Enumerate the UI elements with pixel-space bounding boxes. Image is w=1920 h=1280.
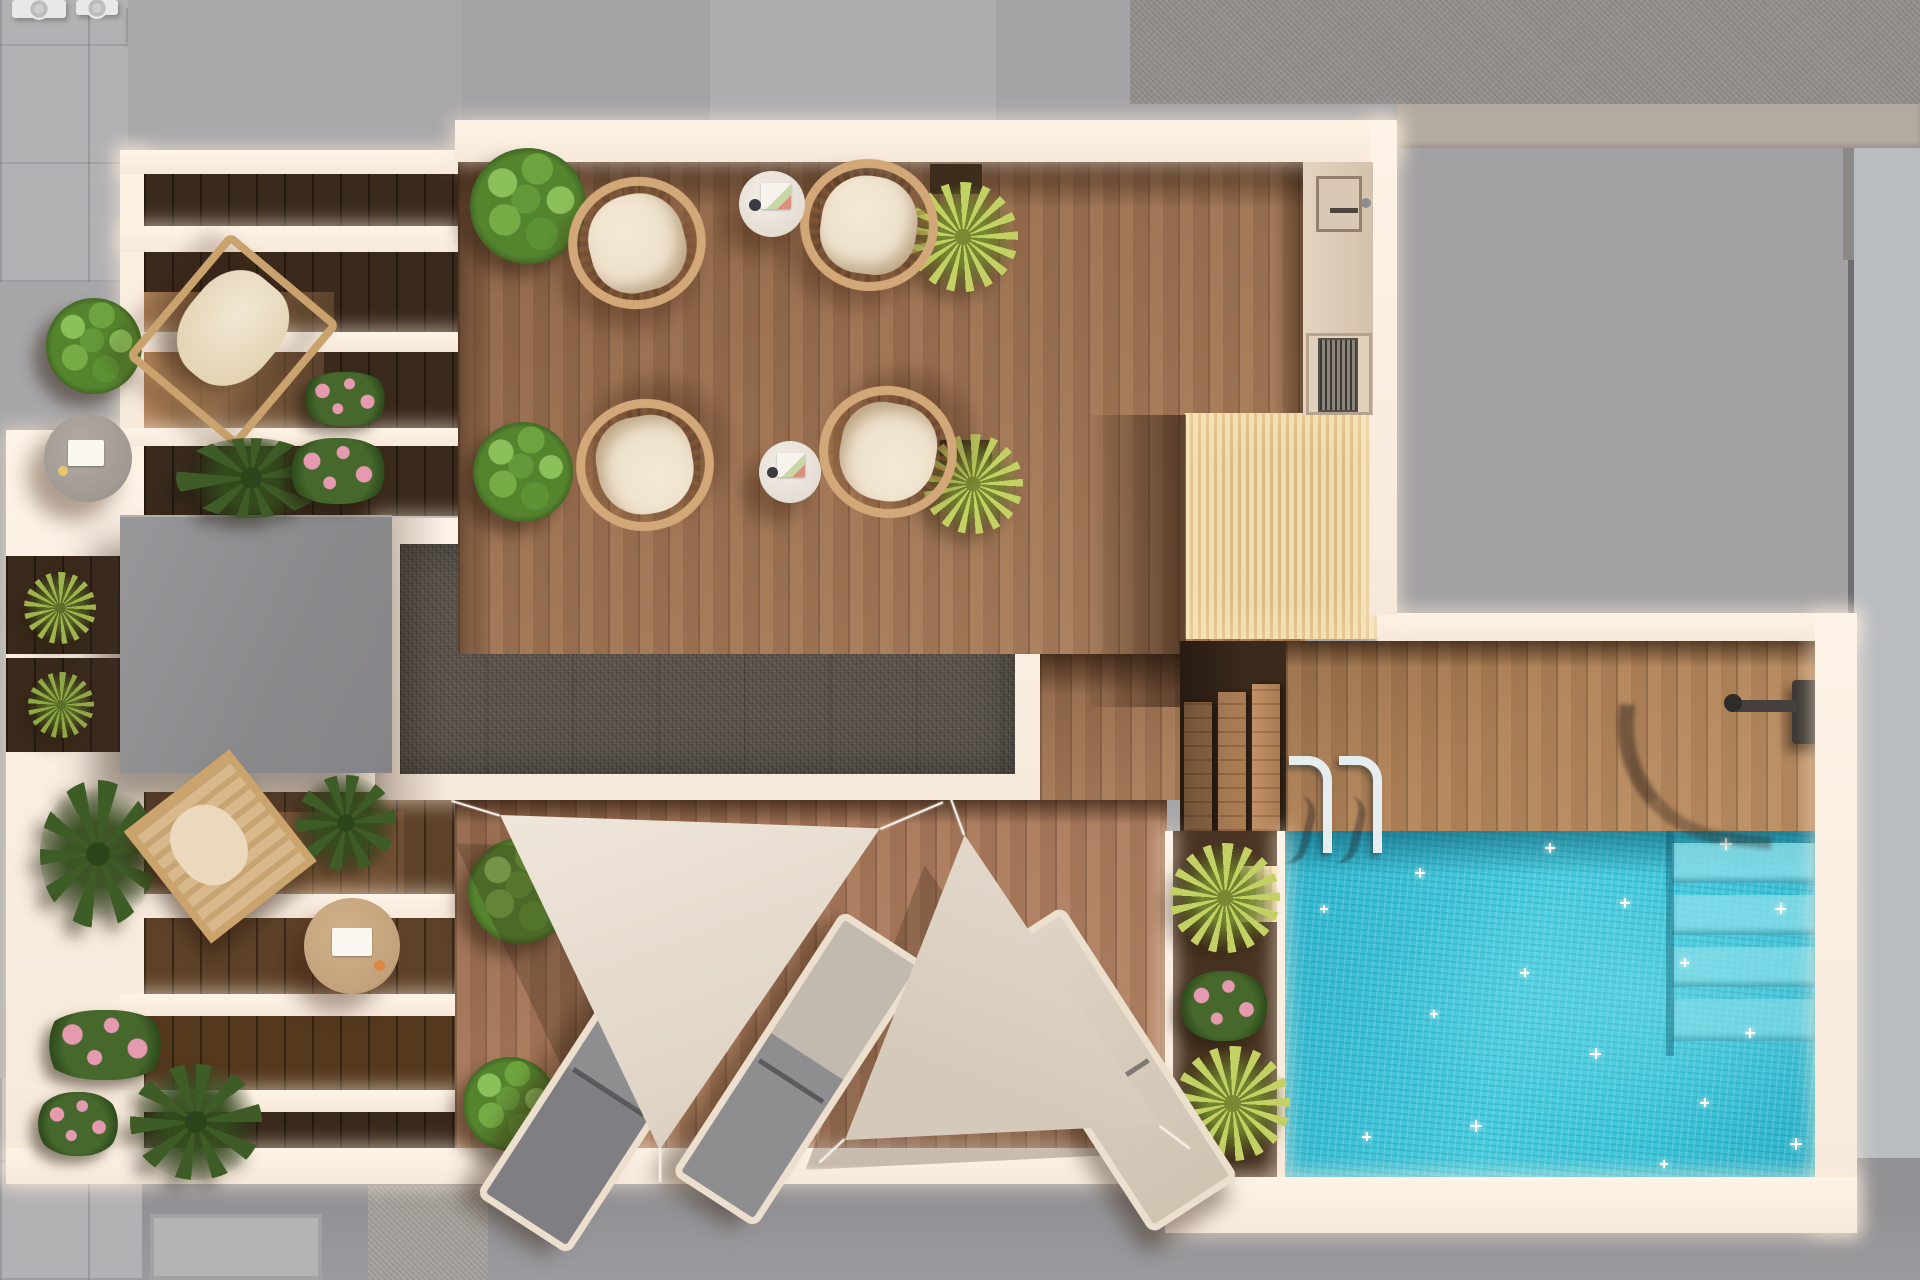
sun-sparkle-icon (1430, 1010, 1438, 1018)
kitchen-sink (1316, 176, 1362, 232)
table-tray (777, 453, 805, 477)
sun-sparkle-icon (1545, 843, 1555, 853)
table-tray (68, 440, 104, 466)
leafy-plant (130, 1064, 262, 1180)
pergola-beam (120, 994, 460, 1016)
pool-ladder-handle (1289, 756, 1332, 853)
pergola-beam (120, 894, 460, 918)
cup-icon (749, 199, 761, 211)
pool-step (1672, 895, 1815, 935)
leafy-plant (40, 780, 156, 928)
grill-unit (1306, 333, 1372, 415)
right-wall-top (1370, 120, 1397, 615)
wicker-chair (791, 150, 946, 300)
pavement-texture-patch (368, 1186, 488, 1280)
sun-sparkle-icon (1470, 1120, 1482, 1132)
pool-ladder-handle (1339, 756, 1382, 853)
wicker-chair (566, 388, 725, 542)
planter-gap (144, 174, 458, 226)
sun-sparkle-icon (1790, 1138, 1802, 1150)
pool-step (1672, 947, 1815, 987)
yucca-plant (1170, 843, 1280, 953)
wicker-chair (809, 375, 968, 529)
flower-planter (286, 438, 390, 504)
sun-sparkle-icon (1320, 905, 1328, 913)
textured-roof-top-right (1130, 0, 1920, 104)
shower-head-icon (1724, 694, 1742, 712)
lemon-icon (58, 466, 68, 476)
sun-sparkle-icon (1660, 1160, 1668, 1168)
agave-plant (28, 672, 94, 738)
bush (473, 422, 573, 522)
service-block (120, 515, 392, 773)
sun-sparkle-icon (1775, 903, 1786, 914)
sun-sparkle-icon (1745, 1028, 1755, 1038)
faucet-knob-icon (1361, 198, 1371, 208)
gray-side-table (44, 414, 132, 502)
pool-step-edge-shadow (1666, 831, 1674, 1056)
white-side-table (739, 171, 805, 237)
slat-deck-shadow (1090, 415, 1186, 707)
rooftop-terrace-render (0, 0, 1920, 1280)
steps-shadow (1180, 641, 1244, 831)
sun-sparkle-icon (1415, 868, 1425, 878)
pool-right-wall (1815, 613, 1857, 1233)
flower-planter (1179, 971, 1269, 1041)
pool-step (1672, 843, 1815, 883)
sun-sparkle-icon (1520, 968, 1529, 977)
bush (46, 298, 142, 394)
swimming-pool (1285, 831, 1815, 1177)
shower-arm (1736, 700, 1796, 712)
cup-icon (767, 467, 778, 478)
planter-gap (144, 918, 458, 994)
kitchen-edge-shadow (1272, 160, 1305, 415)
flower-planter (300, 372, 390, 426)
slat-deck (1185, 413, 1379, 639)
wing-top-wall (120, 150, 460, 174)
sail-cord (659, 1148, 661, 1182)
white-side-table (759, 441, 821, 503)
parapet-band (1395, 104, 1920, 148)
wall-shadow (1286, 641, 1817, 667)
orange-icon (374, 960, 385, 971)
table-tray (332, 928, 372, 956)
flower-planter (40, 1010, 170, 1080)
roof-strip-right-edge (1854, 148, 1920, 1280)
pavement-tiles-top-left (0, 0, 128, 282)
pool-step (1672, 999, 1815, 1041)
faucet-arm (1330, 208, 1358, 213)
pavement-skylight-outline (150, 1214, 322, 1280)
sun-sparkle-icon (1620, 898, 1630, 908)
sun-sparkle-icon (1680, 958, 1689, 967)
flower-planter (36, 1092, 120, 1156)
sun-sparkle-icon (1700, 1098, 1709, 1107)
grill-grate-icon (1320, 340, 1356, 410)
wing-left-sliver (120, 150, 146, 432)
ac-unit-icon (76, 0, 118, 15)
pool-wing-top-wall (1377, 613, 1857, 641)
pool-bottom-curb (1165, 1177, 1857, 1233)
agave-plant (24, 572, 96, 644)
table-tray (761, 183, 791, 209)
pergola-beam (120, 226, 460, 252)
sun-sparkle-icon (1362, 1132, 1371, 1141)
tan-side-table (304, 898, 400, 994)
ac-unit-icon (12, 0, 66, 18)
top-wall (455, 120, 1397, 162)
sun-sparkle-icon (1590, 1048, 1601, 1059)
roof-patch (128, 0, 462, 152)
